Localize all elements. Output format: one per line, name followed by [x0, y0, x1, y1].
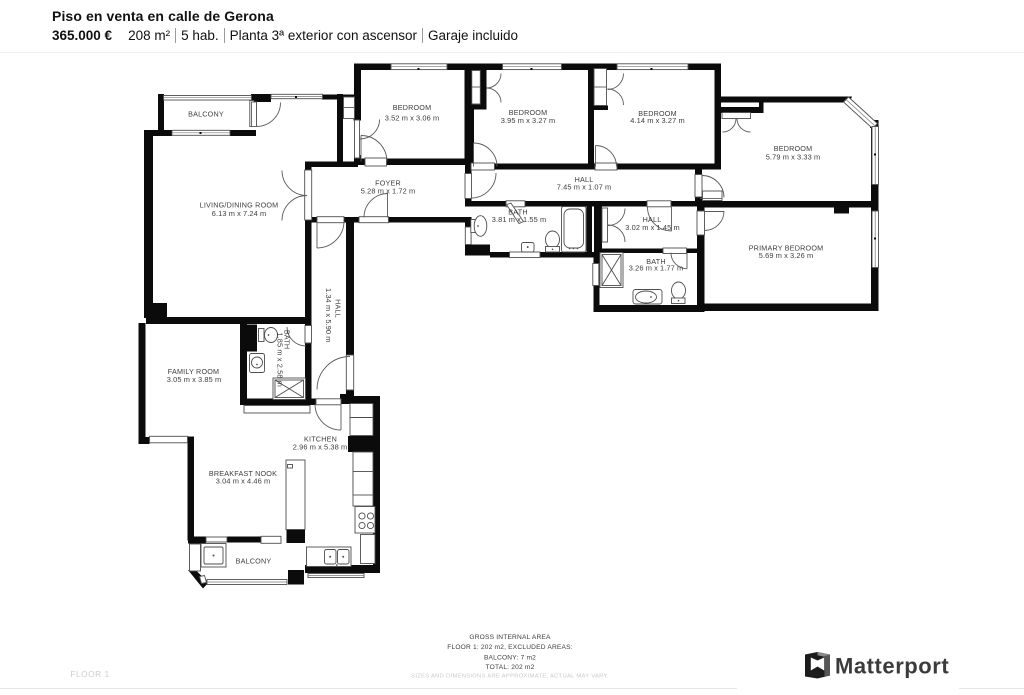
- svg-text:7.45 m x 1.07 m: 7.45 m x 1.07 m: [557, 183, 612, 192]
- svg-text:5.69 m x 3.26 m: 5.69 m x 3.26 m: [759, 251, 814, 260]
- svg-text:3.52 m x 3.06 m: 3.52 m x 3.06 m: [385, 114, 440, 123]
- svg-text:2.96 m x 5.38 m: 2.96 m x 5.38 m: [293, 443, 348, 452]
- svg-text:FLOOR 1: 202 m2, EXCLUDED AREA: FLOOR 1: 202 m2, EXCLUDED AREAS:: [447, 644, 573, 651]
- svg-text:BEDROOM: BEDROOM: [774, 144, 813, 153]
- svg-text:SIZES AND DIMENSIONS ARE APPRO: SIZES AND DIMENSIONS ARE APPROXIMATE, AC…: [411, 674, 609, 680]
- svg-text:BALCONY: BALCONY: [188, 110, 224, 119]
- svg-text:3.95 m x 3.27 m: 3.95 m x 3.27 m: [501, 116, 556, 125]
- svg-text:5.79 m x 3.33 m: 5.79 m x 3.33 m: [766, 153, 821, 162]
- svg-text:GROSS INTERNAL AREA: GROSS INTERNAL AREA: [469, 634, 551, 641]
- svg-text:LIVING/DINING ROOM: LIVING/DINING ROOM: [200, 200, 279, 209]
- svg-text:BALCONY: 7 m2: BALCONY: 7 m2: [484, 655, 536, 662]
- svg-text:FLOOR 1: FLOOR 1: [70, 669, 109, 679]
- svg-text:TOTAL: 202 m2: TOTAL: 202 m2: [486, 664, 535, 671]
- svg-text:HALL: HALL: [334, 299, 343, 318]
- svg-text:5.28 m x 1.72 m: 5.28 m x 1.72 m: [361, 187, 416, 196]
- svg-text:BALCONY: BALCONY: [236, 556, 272, 565]
- svg-text:1.85 m x 2.58 m: 1.85 m x 2.58 m: [276, 332, 285, 387]
- svg-text:Matterport: Matterport: [835, 654, 949, 679]
- svg-text:4.14 m x 3.27 m: 4.14 m x 3.27 m: [630, 116, 685, 125]
- svg-text:3.26 m x 1.77 m: 3.26 m x 1.77 m: [629, 264, 684, 273]
- svg-text:3.02 m x 1.45 m: 3.02 m x 1.45 m: [625, 223, 680, 232]
- svg-text:1.34 m x 5.90 m: 1.34 m x 5.90 m: [324, 288, 333, 343]
- svg-text:3.04 m x 4.46 m: 3.04 m x 4.46 m: [216, 477, 271, 486]
- svg-text:6.13 m x 7.24 m: 6.13 m x 7.24 m: [212, 209, 267, 218]
- svg-text:3.05 m x 3.85 m: 3.05 m x 3.85 m: [167, 375, 222, 384]
- svg-text:BEDROOM: BEDROOM: [393, 103, 432, 112]
- svg-text:3.81 m x 1.55 m: 3.81 m x 1.55 m: [492, 215, 547, 224]
